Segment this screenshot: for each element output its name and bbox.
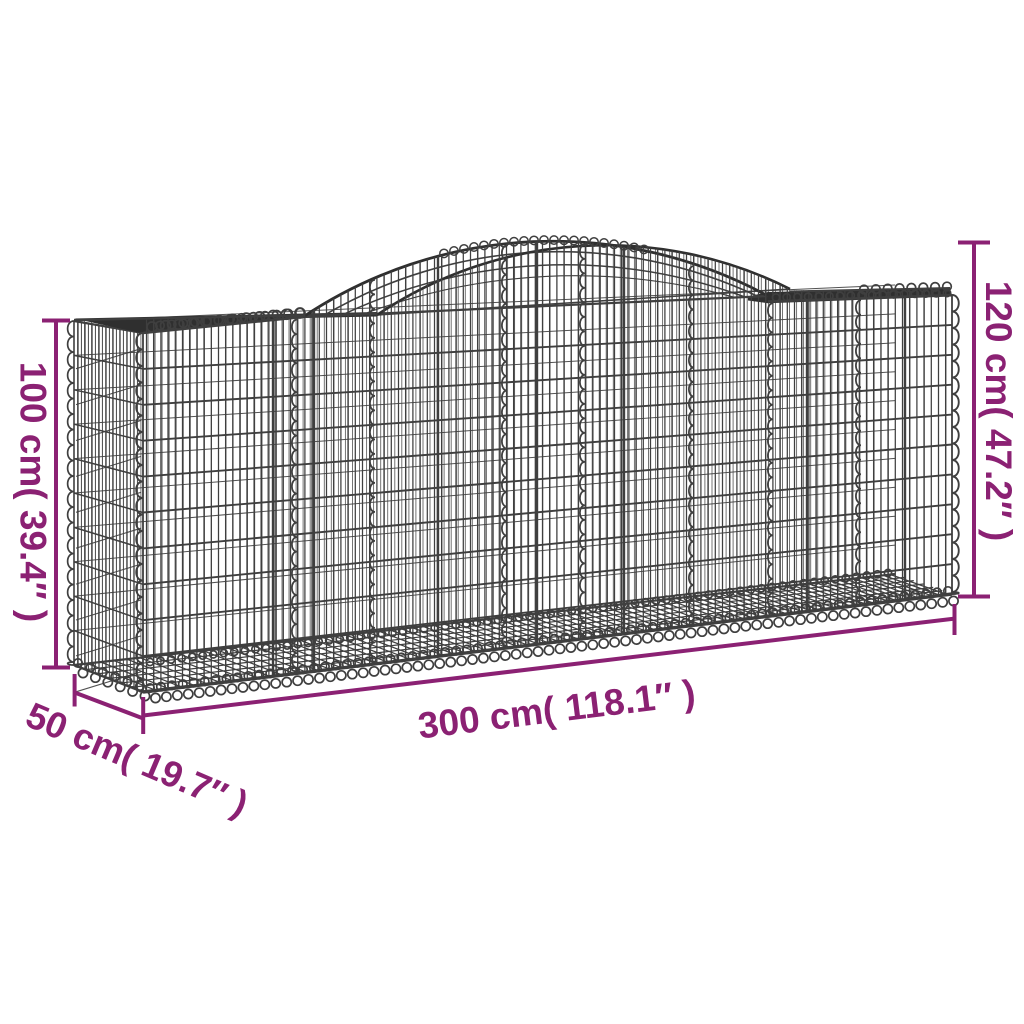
svg-text:120 cm( 47.2″ ): 120 cm( 47.2″ ) [978, 281, 1019, 541]
svg-text:50 cm( 19.7″ ): 50 cm( 19.7″ ) [20, 694, 254, 824]
svg-text:100 cm( 39.4″ ): 100 cm( 39.4″ ) [13, 362, 54, 622]
svg-text:300 cm( 118.1″ ): 300 cm( 118.1″ ) [416, 672, 698, 746]
